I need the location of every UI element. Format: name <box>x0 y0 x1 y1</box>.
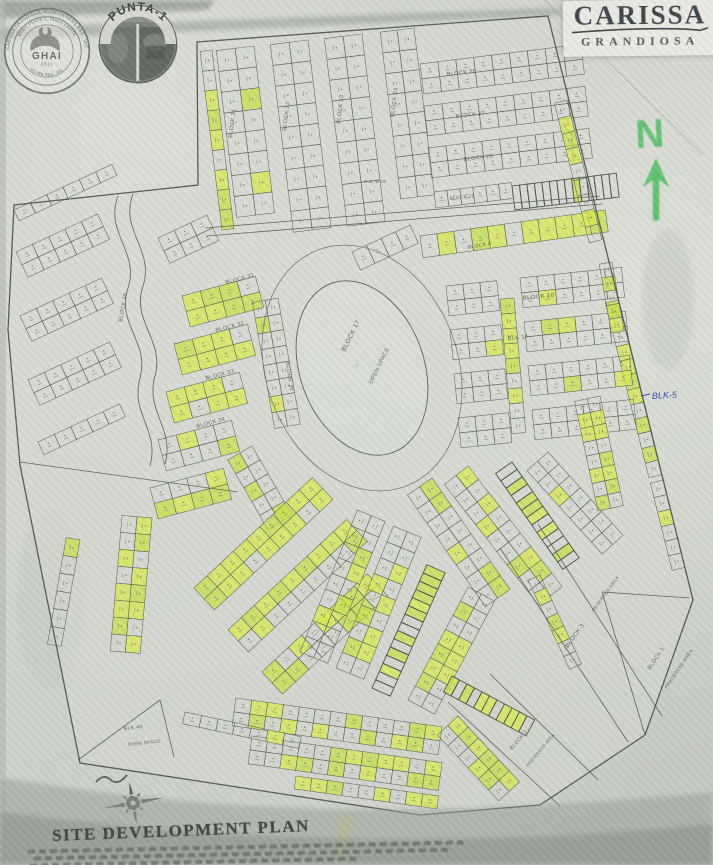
lot <box>128 601 144 619</box>
lot <box>207 110 221 131</box>
block-label: O.S. B-29 <box>364 179 386 184</box>
lot <box>500 298 515 314</box>
lot <box>296 757 314 773</box>
lot <box>329 747 347 763</box>
lot <box>377 754 395 770</box>
lot <box>250 700 268 716</box>
lot <box>508 388 523 404</box>
lot <box>373 787 391 802</box>
lot <box>437 231 457 255</box>
lot <box>505 358 520 374</box>
project-title: CARISSA <box>563 1 713 30</box>
lot <box>311 723 329 739</box>
lot <box>563 376 581 393</box>
north-indicator: N <box>634 112 669 218</box>
lot <box>310 778 328 793</box>
lot <box>136 517 152 535</box>
lot <box>555 215 575 239</box>
lot <box>96 164 117 182</box>
lot <box>131 567 147 585</box>
ghai-seal-logo: CARISSA GRANDIOSA HOMEOWNERS ASS., INC. … <box>2 6 92 96</box>
lot <box>215 169 229 190</box>
lot <box>113 600 129 618</box>
lot <box>558 317 576 334</box>
lot <box>134 534 150 552</box>
lot <box>63 180 84 198</box>
lot <box>359 730 377 746</box>
lot <box>248 714 266 730</box>
lot <box>205 90 219 111</box>
lot <box>118 549 134 567</box>
lot <box>266 702 284 718</box>
handwritten-block-note: BLK-5 <box>652 390 678 401</box>
scanned-site-plan: BLOCK 21BLOCK 22BLOCK 23BLOCK 24BLOCK 28… <box>0 0 713 865</box>
ink-squiggle <box>96 775 127 782</box>
lot <box>63 538 80 558</box>
lot <box>501 313 516 329</box>
lot <box>210 129 224 150</box>
lot <box>345 749 363 765</box>
lot <box>609 173 619 198</box>
lot <box>280 719 298 735</box>
seal-year: 2011 <box>41 61 53 66</box>
lot <box>130 584 146 602</box>
lot <box>294 776 312 791</box>
lot <box>424 725 442 741</box>
lot <box>565 59 585 76</box>
scan-edge <box>0 0 6 865</box>
lot <box>538 217 558 241</box>
lot <box>391 734 409 750</box>
lot <box>115 583 131 601</box>
lot <box>406 736 424 752</box>
lot <box>112 617 128 635</box>
lot <box>79 172 100 190</box>
site-plan-map: BLOCK 21BLOCK 22BLOCK 23BLOCK 24BLOCK 28… <box>0 0 713 865</box>
punta-seal-logo: PUNTA-1 <box>96 2 180 86</box>
lot <box>280 754 298 770</box>
lot <box>422 774 440 790</box>
seal-name: GHAI <box>32 51 62 62</box>
lot <box>125 635 141 653</box>
lot <box>250 171 271 194</box>
lot <box>485 340 503 357</box>
lot <box>614 370 632 387</box>
lot <box>269 395 285 413</box>
north-label: N <box>634 112 665 157</box>
lot <box>504 343 519 359</box>
lot <box>361 752 379 768</box>
lot <box>424 760 442 776</box>
project-title-block: CARISSA GRANDIOSA <box>563 0 713 57</box>
lot <box>408 722 426 738</box>
lot <box>240 88 261 111</box>
lot <box>326 780 344 795</box>
lot <box>541 318 559 335</box>
lot <box>421 794 439 809</box>
scan-stain <box>642 230 694 370</box>
lot <box>521 219 541 243</box>
lot <box>327 761 345 777</box>
lot <box>359 765 377 781</box>
lot <box>595 495 611 511</box>
lot <box>405 792 423 807</box>
lot <box>393 756 411 772</box>
lot <box>609 317 624 333</box>
lot <box>345 714 363 730</box>
lot <box>407 772 425 788</box>
lot <box>567 86 587 103</box>
lot <box>217 189 231 210</box>
project-subtitle: GRANDIOSA <box>563 33 713 50</box>
